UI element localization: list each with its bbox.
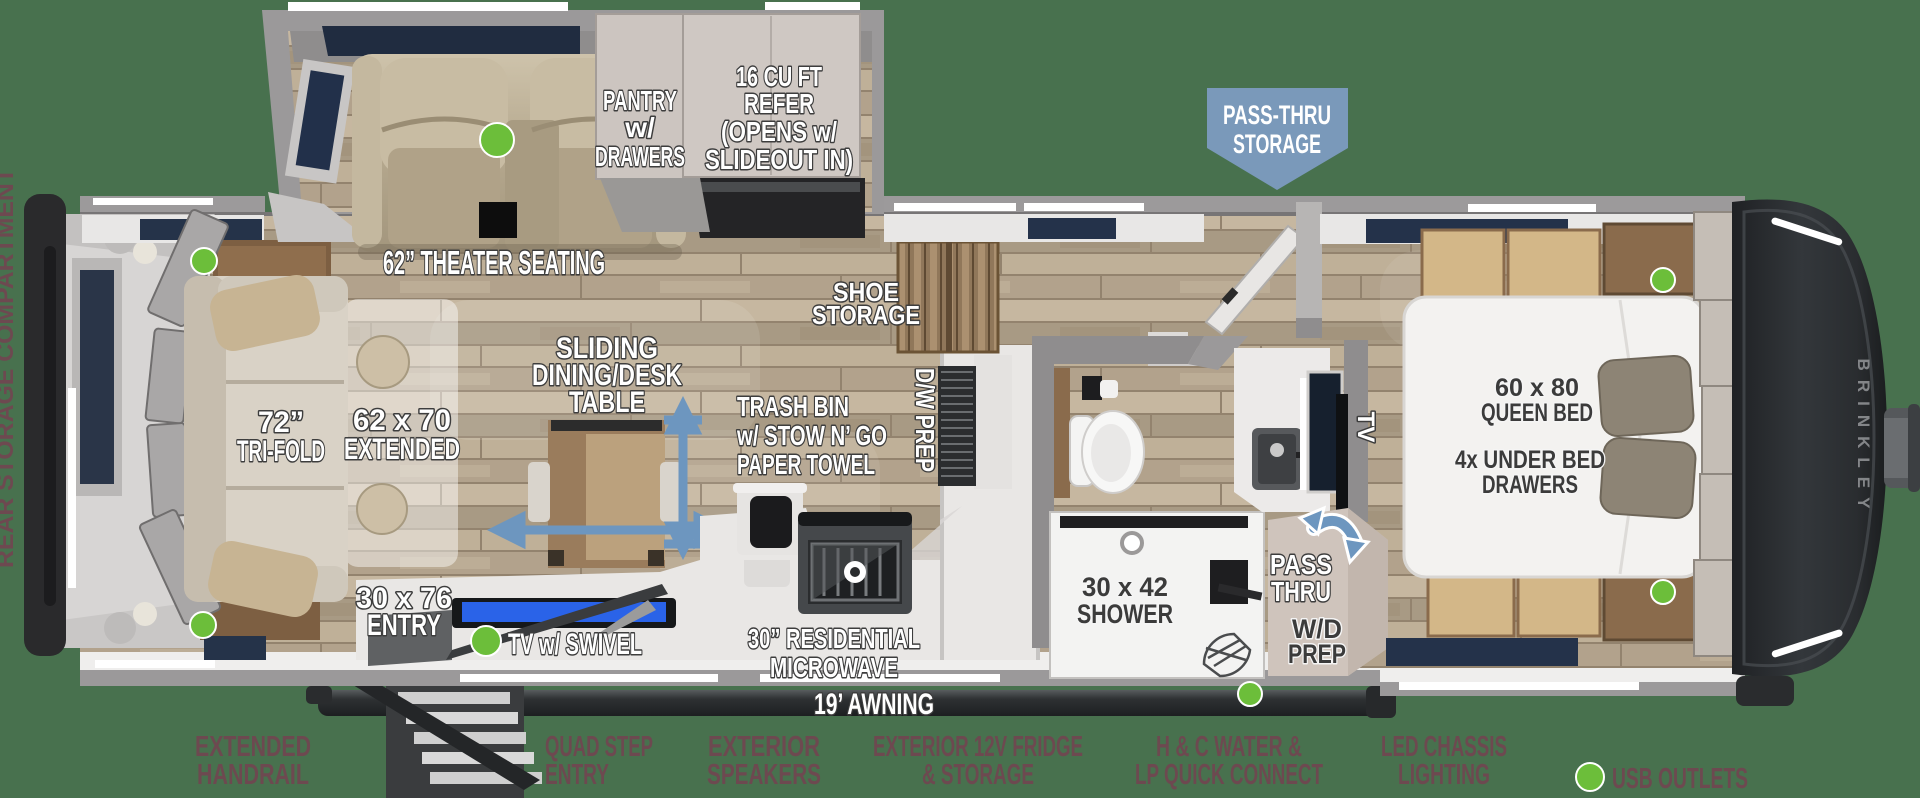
svg-text:PREP: PREP [1288, 639, 1346, 669]
svg-text:REFER: REFER [744, 88, 814, 119]
svg-text:TV: TV [1352, 412, 1379, 443]
svg-text:MICROWAVE: MICROWAVE [770, 652, 898, 683]
svg-text:THRU: THRU [1271, 576, 1331, 607]
svg-text:19’ AWNING: 19’ AWNING [814, 688, 934, 721]
svg-text:PASS-THRU: PASS-THRU [1223, 100, 1331, 130]
svg-text:w/: w/ [624, 112, 655, 143]
svg-text:ENTRY: ENTRY [545, 759, 609, 791]
svg-text:SPEAKERS: SPEAKERS [707, 759, 821, 791]
svg-text:REAR STORAGE COMPARTMENT: REAR STORAGE COMPARTMENT [0, 168, 19, 568]
svg-text:(OPENS w/: (OPENS w/ [721, 116, 837, 147]
svg-text:& STORAGE: & STORAGE [922, 759, 1034, 791]
svg-text:TRASH BIN: TRASH BIN [737, 391, 849, 422]
svg-text:30 x 42: 30 x 42 [1082, 572, 1168, 602]
svg-text:4x UNDER BED: 4x UNDER BED [1455, 446, 1605, 474]
svg-text:SLIDEOUT IN): SLIDEOUT IN) [705, 144, 853, 175]
svg-text:EXTENDED: EXTENDED [344, 433, 460, 466]
svg-text:DRAWERS: DRAWERS [1482, 471, 1578, 499]
svg-text:QUEEN BED: QUEEN BED [1481, 399, 1593, 427]
svg-text:TV w/ SWIVEL: TV w/ SWIVEL [508, 628, 642, 661]
svg-text:w/ STOW N’ GO: w/ STOW N’ GO [736, 420, 887, 451]
svg-text:D/W PREP: D/W PREP [910, 368, 940, 472]
svg-text:TABLE: TABLE [569, 386, 645, 419]
svg-text:ENTRY: ENTRY [367, 609, 441, 642]
svg-text:LP QUICK CONNECT: LP QUICK CONNECT [1135, 759, 1323, 791]
svg-text:BRINKLEY: BRINKLEY [1854, 359, 1873, 518]
svg-text:STORAGE: STORAGE [1233, 129, 1321, 159]
svg-text:30” RESIDENTIAL: 30” RESIDENTIAL [748, 623, 920, 654]
svg-text:USB OUTLETS: USB OUTLETS [1612, 763, 1748, 795]
svg-text:SHOWER: SHOWER [1077, 599, 1173, 629]
svg-text:STORAGE: STORAGE [812, 300, 920, 330]
svg-text:PAPER TOWEL: PAPER TOWEL [737, 449, 875, 480]
svg-text:DRAWERS: DRAWERS [595, 141, 685, 172]
svg-text:TRI-FOLD: TRI-FOLD [237, 435, 325, 468]
svg-text:LIGHTING: LIGHTING [1398, 759, 1490, 791]
svg-text:60 x 80: 60 x 80 [1495, 374, 1579, 402]
svg-text:HANDRAIL: HANDRAIL [197, 759, 309, 791]
svg-text:62” THEATER SEATING: 62” THEATER SEATING [383, 244, 605, 281]
